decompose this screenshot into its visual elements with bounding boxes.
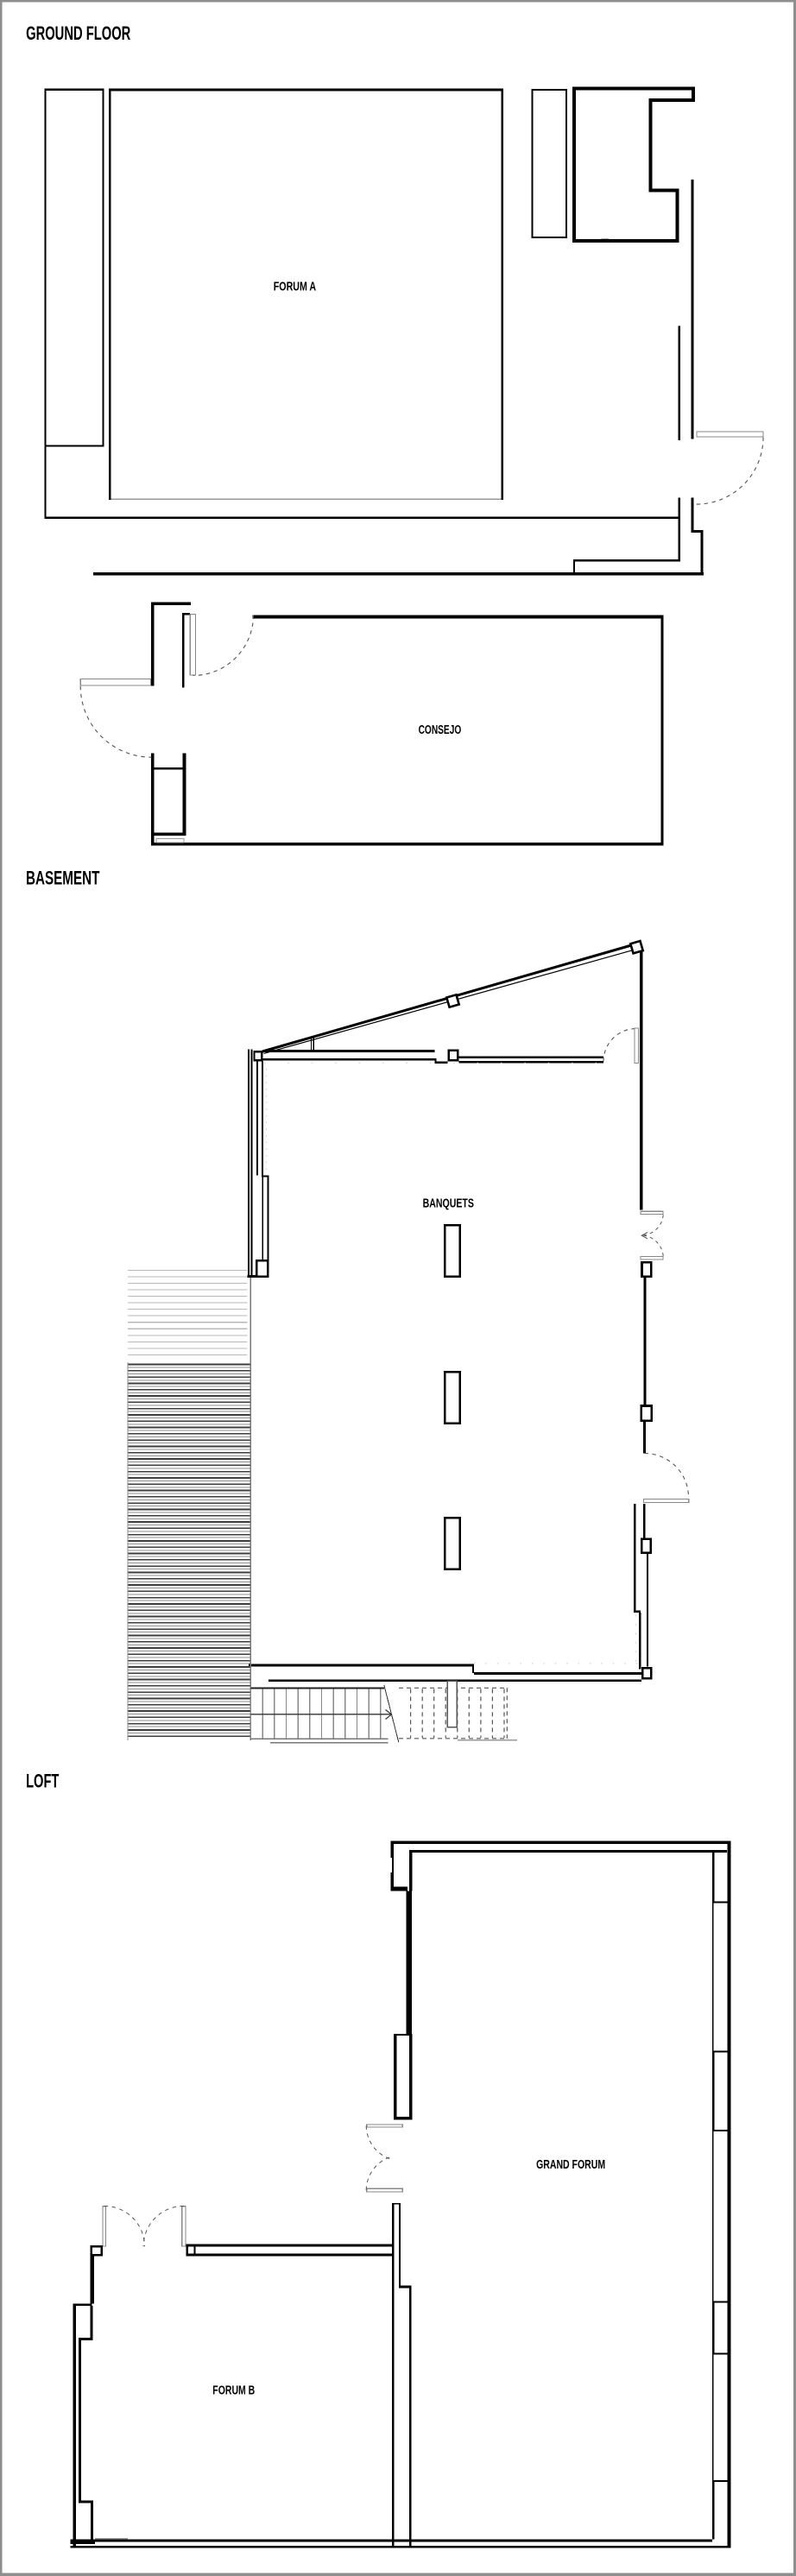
- svg-text:GRAND FORUM: GRAND FORUM: [536, 2156, 605, 2171]
- svg-text:GROUND FLOOR: GROUND FLOOR: [26, 22, 131, 44]
- svg-text:FORUM B: FORUM B: [212, 2382, 255, 2396]
- svg-text:FORUM A: FORUM A: [274, 279, 317, 294]
- svg-text:CONSEJO: CONSEJO: [419, 722, 462, 737]
- svg-text:LOFT: LOFT: [26, 1770, 60, 1791]
- svg-text:BASEMENT: BASEMENT: [26, 868, 100, 889]
- svg-text:BANQUETS: BANQUETS: [423, 1196, 475, 1210]
